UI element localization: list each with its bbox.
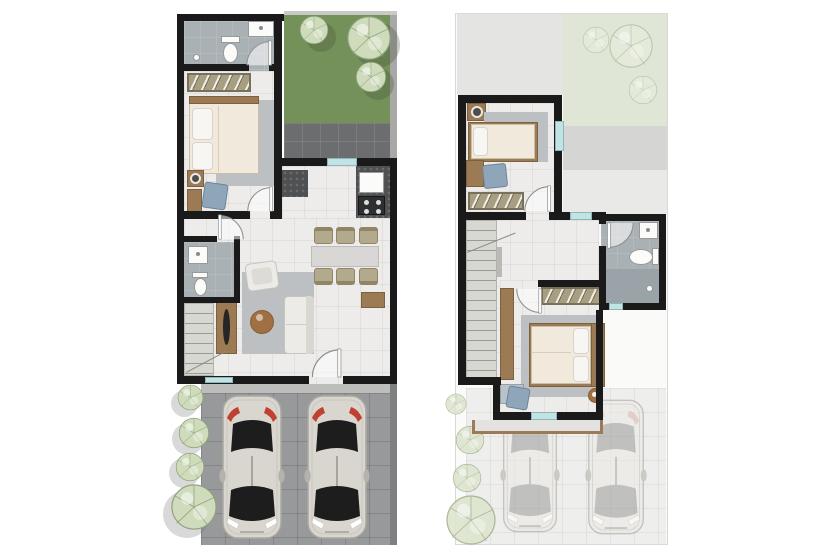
bush-icon [445, 393, 467, 415]
wall [343, 376, 397, 384]
wardrobe [187, 73, 251, 92]
wall [659, 214, 666, 310]
wardrobe [468, 192, 524, 210]
roof-band [563, 170, 667, 214]
bush-icon [177, 384, 204, 411]
bush-icon [178, 417, 210, 449]
wall [596, 310, 603, 420]
wall [599, 246, 606, 310]
bathroom-window [609, 303, 623, 310]
lamp-icon [471, 106, 483, 118]
tv-icon [223, 309, 230, 345]
coffee-table-highlight [256, 314, 263, 321]
door-arc [218, 214, 244, 240]
floor-drain-icon [193, 54, 200, 61]
front-door-arc [310, 348, 343, 378]
tree-icon [346, 15, 392, 61]
blanket-fold [218, 106, 219, 172]
desk [466, 160, 484, 187]
pillow [192, 142, 213, 170]
bush-icon [452, 463, 482, 493]
wardrobe [541, 287, 602, 305]
staircase [466, 220, 497, 378]
dining-chair [336, 227, 355, 244]
sofa-cushion-line [286, 324, 306, 325]
sink-drain [196, 252, 200, 256]
dining-chair [359, 268, 378, 285]
toilet-icon [194, 278, 207, 296]
tree-icon [355, 61, 387, 93]
wall [177, 376, 309, 384]
wall [458, 212, 526, 220]
floor-plan-canvas [0, 0, 831, 557]
carport-edge [390, 384, 397, 545]
roof-below [457, 14, 563, 95]
burner-dots [364, 200, 369, 205]
blanket-fold [531, 352, 571, 353]
hall-window [570, 212, 592, 220]
sideboard [361, 292, 385, 308]
kitchen-sink-icon [359, 172, 384, 193]
roof-band [563, 126, 667, 170]
bush-icon [170, 483, 218, 531]
bed-headboard [189, 96, 259, 104]
kitchen-counter [282, 170, 308, 197]
door-arc [246, 40, 272, 66]
wall [274, 14, 282, 219]
wall [538, 280, 599, 287]
car [304, 394, 370, 540]
wall [177, 236, 217, 242]
toilet-icon [629, 249, 653, 265]
dining-table [311, 246, 379, 267]
dining-chair [314, 268, 333, 285]
entry-mat [205, 377, 233, 383]
desk-chair [201, 181, 228, 210]
wall [177, 64, 249, 71]
patio-tiles [284, 123, 390, 158]
armchair-seat [251, 267, 273, 286]
driveway-strip [201, 384, 390, 393]
balcony [472, 420, 603, 434]
upper-floor-plan [0, 0, 831, 557]
wall [177, 14, 284, 21]
pillow [573, 328, 589, 354]
bush-icon [445, 494, 497, 546]
bush-icon [175, 452, 205, 482]
coffee-table [250, 310, 274, 334]
wall [554, 95, 562, 220]
tree-ghost-icon [608, 23, 654, 69]
sofa-back [306, 296, 314, 354]
wall [599, 212, 606, 224]
bedroom2-window [555, 121, 564, 151]
wall [604, 214, 666, 221]
door-arc [516, 287, 542, 315]
door-arc [247, 186, 273, 212]
pillow [473, 127, 488, 156]
toilet-tank [652, 248, 659, 265]
wall [458, 95, 562, 103]
stair-handrail [497, 247, 502, 277]
desk-chair [482, 163, 508, 189]
tree-ghost-icon [628, 75, 658, 105]
wall [458, 95, 466, 385]
toilet-tank [221, 36, 240, 43]
door-arc [607, 222, 634, 249]
master-window [531, 412, 557, 420]
sink-drain [259, 26, 263, 30]
car [219, 394, 285, 540]
shower-drain-icon [646, 285, 653, 292]
tree-icon [299, 15, 329, 45]
sink-drain [646, 228, 650, 232]
dining-chair [336, 268, 355, 285]
kitchen-window [327, 158, 357, 166]
wall [177, 297, 240, 303]
dresser [500, 288, 514, 380]
pillow [192, 108, 213, 140]
wall [234, 236, 240, 303]
wall [390, 158, 397, 383]
lamp-icon [190, 173, 201, 184]
dining-chair [314, 227, 333, 244]
door-arc [524, 185, 551, 212]
toilet-icon [223, 43, 238, 63]
wall [270, 211, 282, 219]
dining-chair [359, 227, 378, 244]
desk [187, 189, 202, 213]
pillow [573, 356, 589, 382]
stove-icon [358, 196, 385, 215]
tree-ghost-icon [582, 26, 610, 54]
desk-chair [505, 385, 530, 410]
